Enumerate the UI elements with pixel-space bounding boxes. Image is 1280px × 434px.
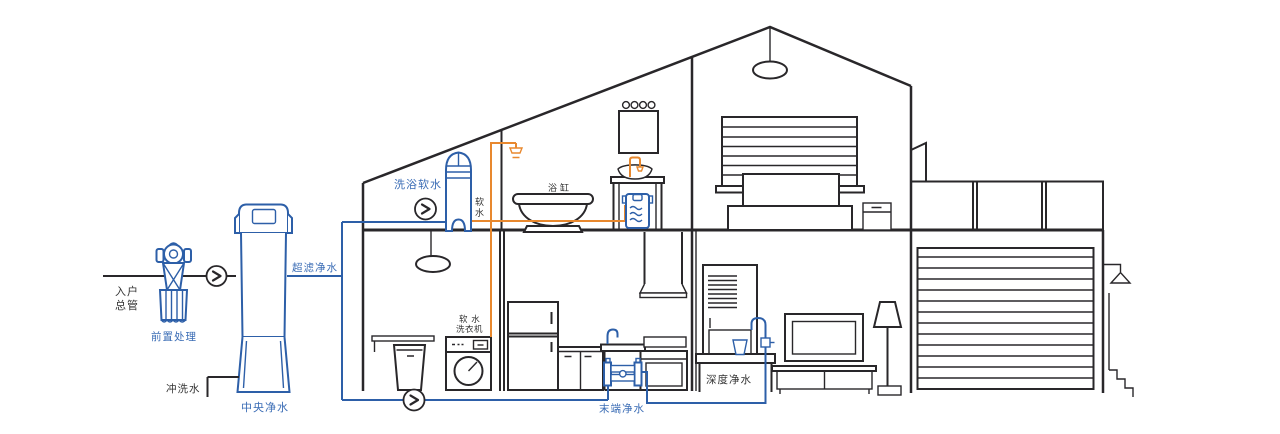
bathtub xyxy=(513,194,593,232)
terminal-filter-device xyxy=(604,359,642,386)
washing-machine xyxy=(446,337,491,390)
label-terminal-purifier: 末端净水 xyxy=(599,402,645,415)
nightstand xyxy=(863,203,891,230)
garage-door xyxy=(918,248,1094,389)
mirror-light-4 xyxy=(648,102,655,109)
shower-icon xyxy=(510,143,522,158)
label-soft-water-1: 软 xyxy=(475,196,485,208)
bed-base xyxy=(728,206,852,230)
central-purifier-device xyxy=(235,205,292,393)
mirror-light-3 xyxy=(640,102,647,109)
label-washer-2: 洗衣机 xyxy=(456,324,483,335)
softener-device xyxy=(446,153,471,232)
mirror xyxy=(619,111,658,153)
label-bathtub: 浴缸 xyxy=(548,182,572,194)
entry-steps xyxy=(1109,370,1133,397)
bedroom xyxy=(716,27,891,230)
kitchen-faucet-icon xyxy=(608,330,618,345)
roof-railing-top xyxy=(911,182,1103,231)
range-hood xyxy=(640,232,687,298)
arrow-circle-1 xyxy=(207,266,227,286)
tv xyxy=(785,314,863,361)
label-deep-purifier: 深度净水 xyxy=(706,373,752,386)
wall-lamp-icon xyxy=(1103,265,1130,284)
label-flush-water: 冲洗水 xyxy=(166,382,201,395)
bed-headboard xyxy=(743,174,839,208)
mirror-light-2 xyxy=(631,102,638,109)
mirror-light-1 xyxy=(623,102,630,109)
label-inlet-line1: 入户 xyxy=(115,284,139,298)
label-inlet-line2: 总管 xyxy=(115,298,139,312)
railing-posts xyxy=(973,182,1046,231)
arrow-circle-3 xyxy=(404,390,425,411)
arrow-circle-2 xyxy=(415,199,436,220)
fridge xyxy=(508,302,558,390)
pipe-flush xyxy=(208,377,240,397)
garage-structure xyxy=(911,143,1133,397)
tv-stand xyxy=(772,366,876,394)
laundry-kitchen-wall xyxy=(500,230,504,391)
parapet-slope xyxy=(911,143,926,182)
label-ultrafiltration: 超滤净水 xyxy=(292,261,338,274)
bathtub-bowl xyxy=(519,204,587,226)
kitchen-cabinets xyxy=(558,347,603,390)
deep-purifier-cabinet xyxy=(703,265,757,355)
label-washer-1: 软 水 xyxy=(459,314,480,325)
laundry-basket xyxy=(394,345,425,390)
water-cup-icon xyxy=(733,340,747,355)
label-soft-water-2: 水 xyxy=(475,207,485,219)
water-counter xyxy=(696,354,775,392)
pendant-lamp-icon xyxy=(753,62,787,79)
sink-basin xyxy=(618,165,652,179)
label-pre-treatment: 前置处理 xyxy=(151,330,197,343)
label-central-purifier: 中央净水 xyxy=(241,400,289,414)
home-water-system-diagram: 入户 总管 前置处理 冲洗水 中央净水 超滤净水 洗浴软水 软 水 浴缸 软 水… xyxy=(0,0,1280,434)
floor-lamp xyxy=(874,302,901,395)
laundry-room xyxy=(372,230,491,390)
kitchen xyxy=(508,232,687,390)
label-bath-softener: 洗浴软水 xyxy=(394,177,442,191)
prefilter-device xyxy=(157,243,192,322)
laundry-pendant-lamp-icon xyxy=(416,256,450,272)
undersink-purifier-icon xyxy=(623,194,653,228)
deep-faucet-icon xyxy=(761,338,775,347)
bathtub-rim xyxy=(513,194,593,204)
